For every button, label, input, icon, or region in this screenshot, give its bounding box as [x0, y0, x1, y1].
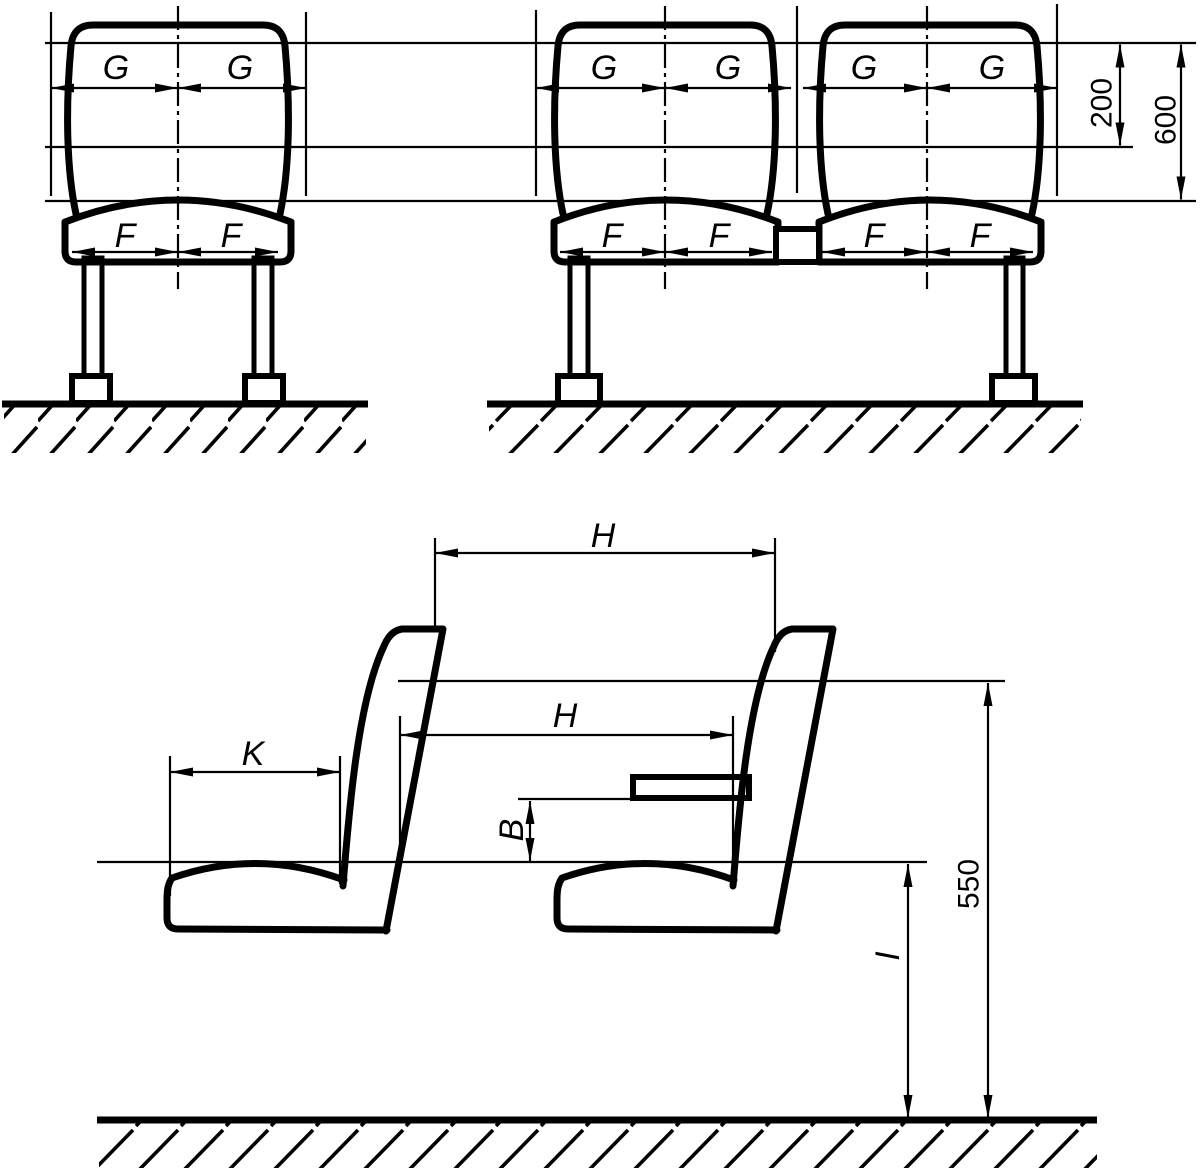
label-f-single-right: F	[221, 217, 244, 255]
bench-center-block	[776, 229, 819, 262]
label-f-single-left: F	[115, 217, 138, 255]
label-f-bench-b-left: F	[864, 217, 887, 255]
front-view: G G G G G G F F F F F F 200 600	[2, 4, 1196, 453]
bench-leg-left	[570, 258, 588, 378]
front-seat-cushion-profile	[167, 863, 387, 930]
side-view: H H K B 550 I	[97, 517, 1097, 1168]
label-g-single-left: G	[103, 49, 129, 87]
label-g-bench-a-left: G	[591, 49, 617, 87]
single-seat-leg-right	[254, 258, 272, 378]
label-g-bench-a-right: G	[715, 49, 741, 87]
label-i: I	[869, 951, 907, 961]
label-g-bench-b-left: G	[851, 49, 877, 87]
label-g-single-right: G	[227, 49, 253, 87]
front-seat-backrest-profile	[343, 629, 443, 931]
single-seat-foot-left	[72, 376, 110, 403]
label-b: B	[493, 819, 531, 842]
label-h-mid: H	[553, 697, 578, 735]
bench-foot-right	[992, 376, 1035, 403]
label-f-bench-a-right: F	[709, 217, 732, 255]
single-seat-foot-right	[245, 376, 283, 403]
armrest	[633, 777, 749, 798]
ground-hatch-bottom	[99, 1123, 1097, 1168]
label-f-bench-a-left: F	[602, 217, 625, 255]
label-dim-600: 600	[1150, 95, 1183, 145]
seat-dimension-drawing: G G G G G G F F F F F F 200 600	[0, 0, 1200, 1171]
drawing-canvas: G G G G G G F F F F F F 200 600	[0, 0, 1200, 1171]
bench-leg-right	[1006, 258, 1023, 378]
label-dim-550: 550	[953, 859, 986, 909]
rear-seat-cushion-profile	[557, 863, 777, 930]
label-g-bench-b-right: G	[979, 49, 1005, 87]
label-dim-200: 200	[1086, 78, 1119, 128]
bench-foot-left	[558, 376, 600, 403]
single-seat-leg-left	[84, 258, 102, 378]
ground-hatch-left	[4, 407, 366, 453]
label-k: K	[242, 735, 266, 773]
ground-hatch-right	[489, 407, 1081, 453]
label-f-bench-b-right: F	[970, 217, 993, 255]
label-h-top: H	[591, 517, 616, 555]
